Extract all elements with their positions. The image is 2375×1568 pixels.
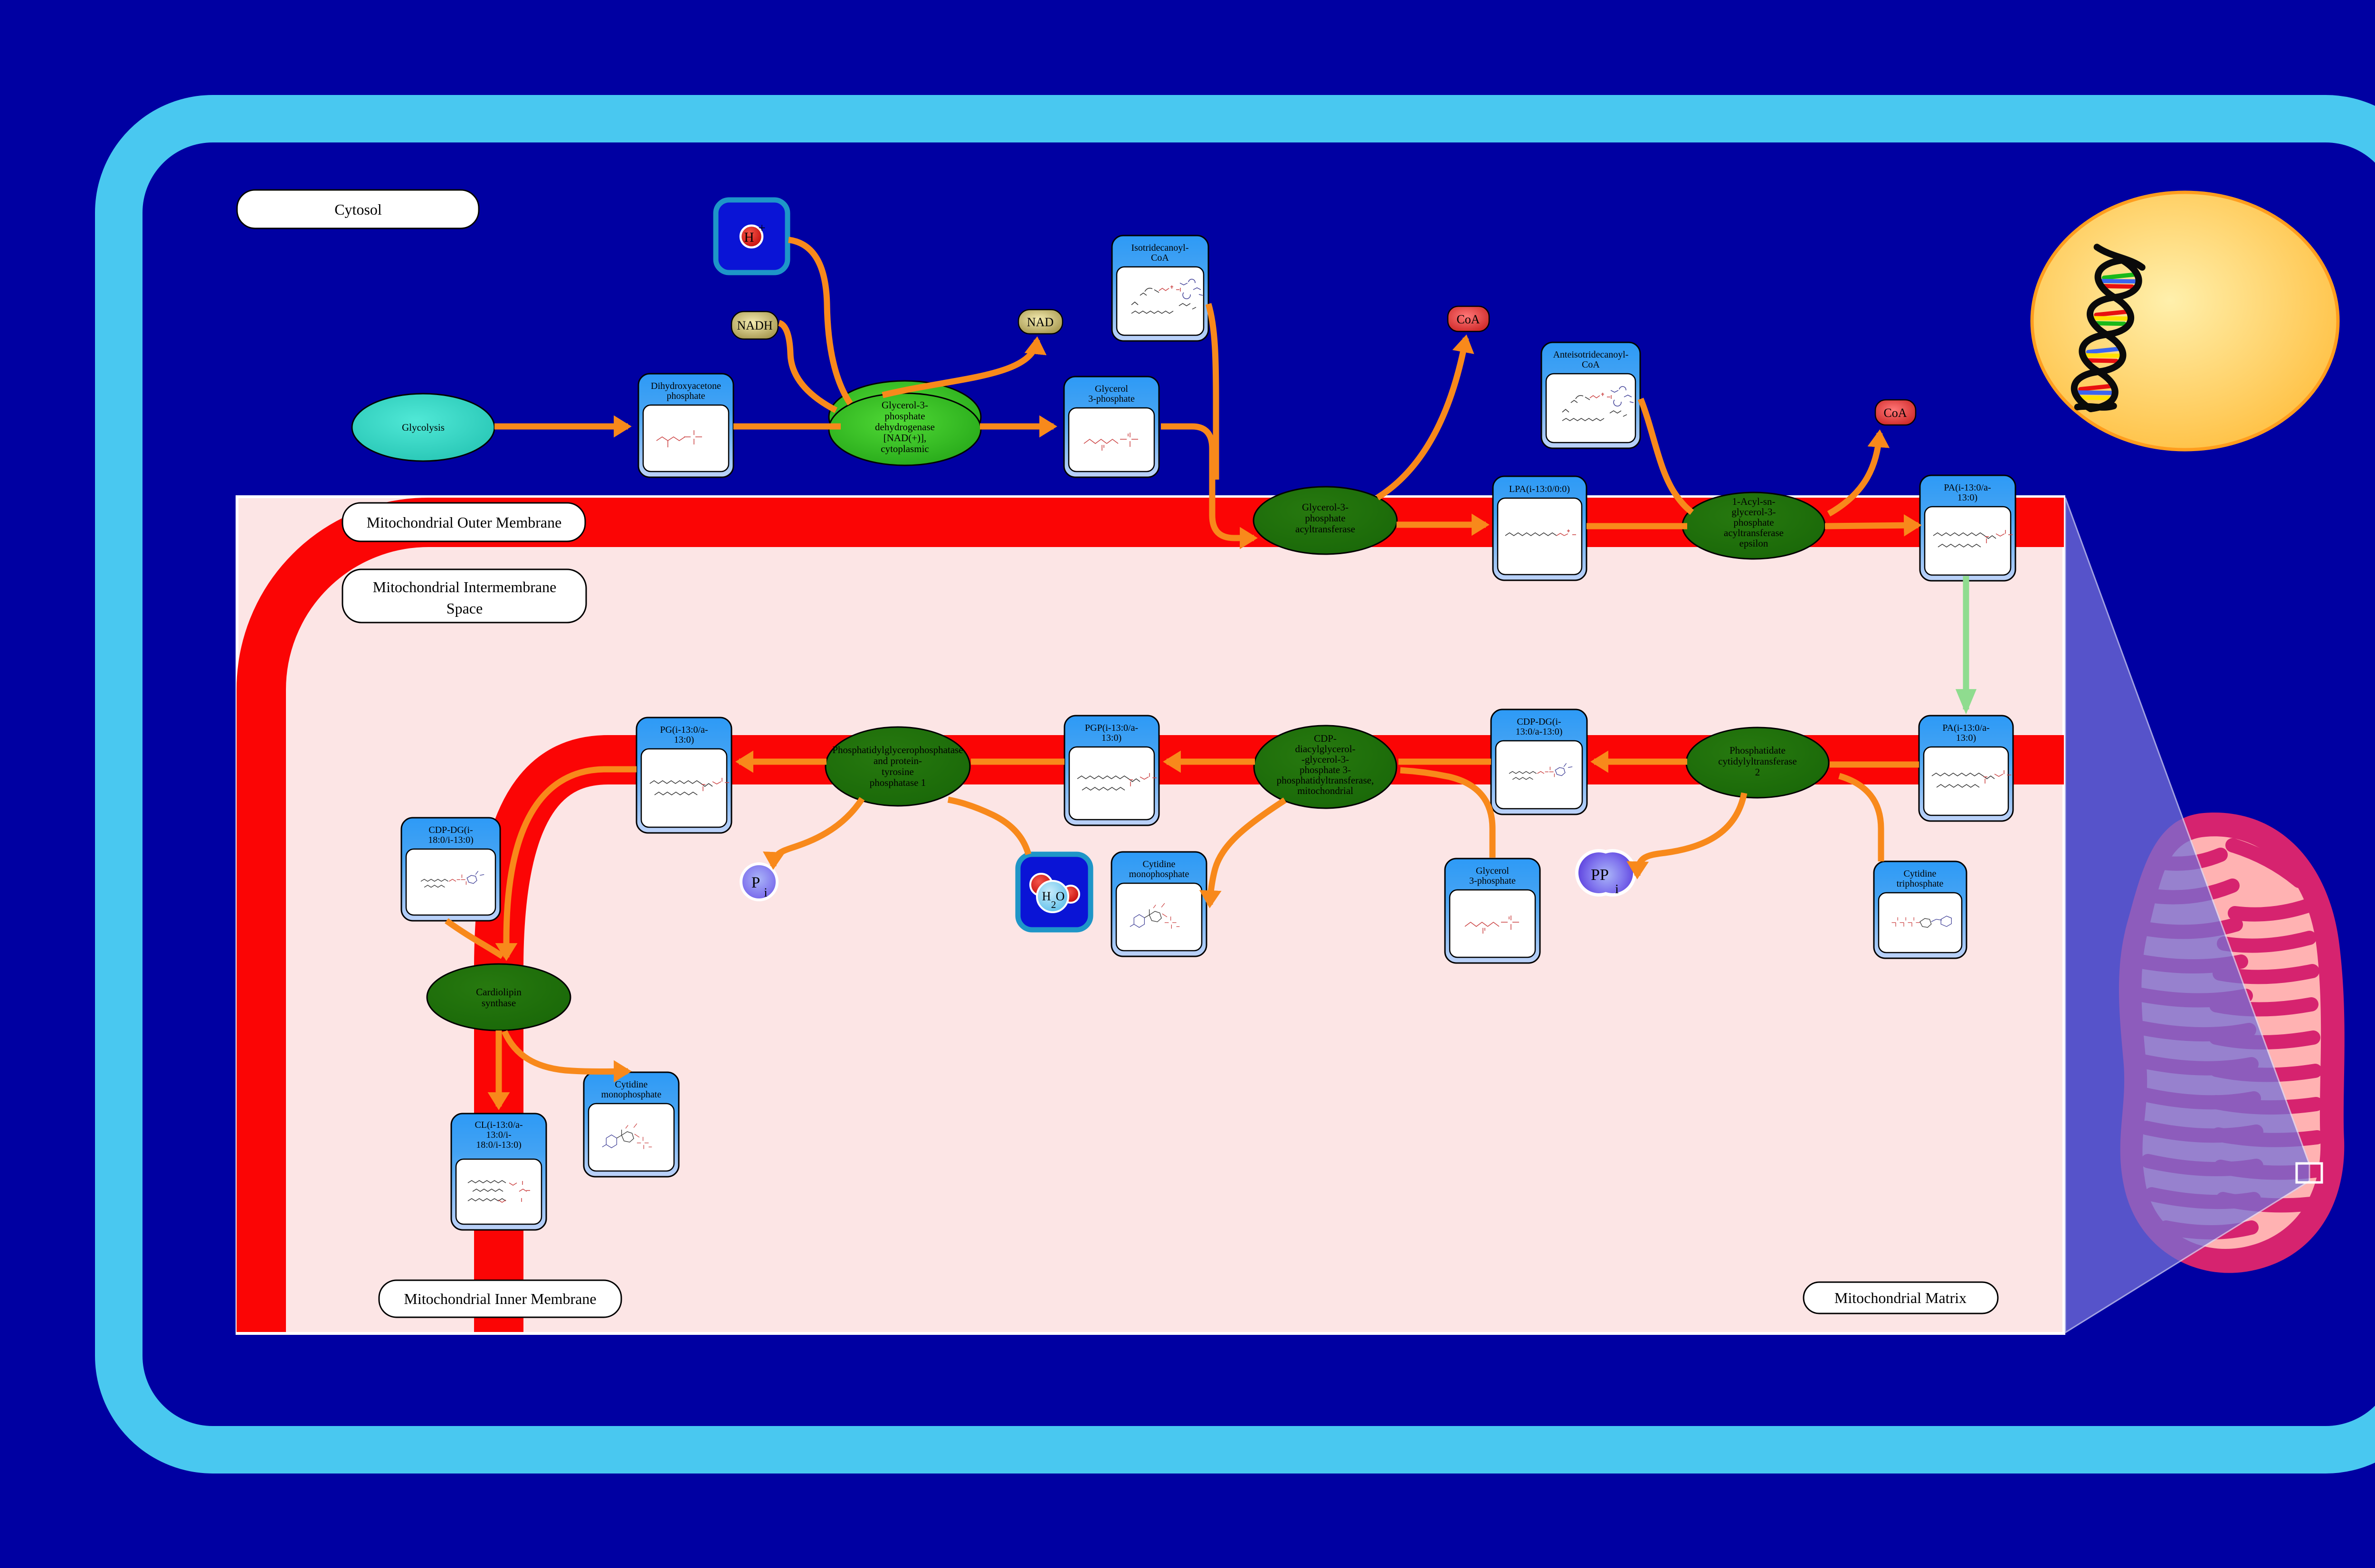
svg-text:13:0): 13:0)	[1957, 492, 1977, 503]
svg-text:Dihydroxyacetone: Dihydroxyacetone	[651, 381, 721, 391]
svg-text:18:0/i-13:0): 18:0/i-13:0)	[476, 1140, 522, 1150]
svg-text:2: 2	[1755, 766, 1760, 778]
svg-text:NADH: NADH	[737, 319, 772, 332]
svg-text:Glycerol-3-: Glycerol-3-	[1302, 501, 1349, 513]
svg-text:and protein-: and protein-	[874, 755, 922, 766]
svg-text:O: O	[1056, 889, 1065, 903]
svg-text:Cytidine: Cytidine	[615, 1079, 648, 1090]
svg-text:Mitochondrial Intermembrane: Mitochondrial Intermembrane	[373, 578, 557, 595]
svg-text:phosphate: phosphate	[666, 391, 705, 401]
svg-text:Glycerol: Glycerol	[1476, 866, 1509, 876]
svg-text:diacylglycerol-: diacylglycerol-	[1295, 743, 1355, 755]
svg-text:13:0/i-: 13:0/i-	[486, 1130, 511, 1140]
svg-text:CoA: CoA	[1456, 312, 1480, 326]
svg-text:Cytidine: Cytidine	[1904, 869, 1937, 879]
svg-text:P: P	[751, 874, 760, 891]
svg-text:triphosphate: triphosphate	[1897, 878, 1944, 889]
svg-text:Phosphatidate: Phosphatidate	[1729, 745, 1786, 756]
svg-text:1-Acyl-sn-: 1-Acyl-sn-	[1732, 496, 1776, 507]
svg-text:Phosphatidylglycerophosphatase: Phosphatidylglycerophosphatase	[832, 744, 963, 756]
svg-text:Mitochondrial Matrix: Mitochondrial Matrix	[1834, 1289, 1966, 1306]
svg-text:H: H	[744, 230, 754, 245]
svg-text:Space: Space	[446, 600, 483, 617]
svg-text:PA(i-13:0/a-: PA(i-13:0/a-	[1944, 482, 1991, 493]
svg-text:Cytidine: Cytidine	[1143, 859, 1176, 869]
svg-text:tyrosine: tyrosine	[882, 766, 914, 777]
svg-text:monophosphate: monophosphate	[601, 1089, 662, 1100]
svg-text:Cytosol: Cytosol	[334, 201, 382, 218]
svg-text:+: +	[758, 221, 765, 235]
svg-text:18:0/i-13:0): 18:0/i-13:0)	[428, 835, 474, 845]
svg-text:Cardiolipin: Cardiolipin	[476, 986, 522, 998]
svg-text:phosphate: phosphate	[1305, 512, 1345, 524]
svg-text:CDP-DG(i-: CDP-DG(i-	[428, 825, 473, 835]
svg-text:CoA: CoA	[1883, 406, 1907, 420]
svg-text:CoA: CoA	[1151, 253, 1169, 263]
svg-text:3-phosphate: 3-phosphate	[1469, 876, 1516, 886]
svg-text:PG(i-13:0/a-: PG(i-13:0/a-	[660, 725, 708, 735]
svg-text:CDP-DG(i-: CDP-DG(i-	[1517, 717, 1561, 727]
svg-text:acyltransferase: acyltransferase	[1724, 527, 1784, 538]
svg-text:Glycerol-3-: Glycerol-3-	[882, 399, 928, 411]
svg-text:Mitochondrial Outer Membrane: Mitochondrial Outer Membrane	[367, 514, 562, 531]
svg-text:Mitochondrial Inner Membrane: Mitochondrial Inner Membrane	[404, 1290, 596, 1307]
svg-text:Anteisotridecanoyl-: Anteisotridecanoyl-	[1553, 349, 1629, 360]
svg-text:CL(i-13:0/a-: CL(i-13:0/a-	[475, 1120, 522, 1130]
svg-text:-glycerol-3-: -glycerol-3-	[1301, 754, 1349, 765]
svg-text:13:0/a-13:0): 13:0/a-13:0)	[1516, 727, 1563, 737]
svg-text:i: i	[1615, 882, 1619, 896]
svg-text:mitochondrial: mitochondrial	[1297, 785, 1353, 796]
svg-text:CoA: CoA	[1582, 359, 1600, 370]
svg-text:Glycolysis: Glycolysis	[402, 422, 445, 433]
svg-text:dehydrogenase: dehydrogenase	[875, 421, 935, 433]
svg-text:PP: PP	[1591, 866, 1609, 884]
svg-text:CDP-: CDP-	[1314, 733, 1337, 744]
svg-text:3-phosphate: 3-phosphate	[1088, 394, 1135, 404]
svg-text:H: H	[1042, 889, 1051, 903]
svg-text:13:0): 13:0)	[674, 735, 694, 745]
svg-text:phosphatidyltransferase,: phosphatidyltransferase,	[1277, 775, 1374, 786]
svg-text:13:0): 13:0)	[1956, 733, 1976, 743]
svg-text:NAD: NAD	[1027, 315, 1054, 329]
svg-text:acyltransferase: acyltransferase	[1295, 523, 1355, 535]
svg-text:PA(i-13:0/a-: PA(i-13:0/a-	[1942, 723, 1989, 733]
svg-text:phosphatase 1: phosphatase 1	[870, 777, 926, 788]
svg-text:LPA(i-13:0/0:0): LPA(i-13:0/0:0)	[1509, 484, 1570, 494]
svg-text:Glycerol: Glycerol	[1095, 384, 1128, 394]
svg-text:synthase: synthase	[482, 997, 516, 1009]
svg-text:phosphate: phosphate	[884, 410, 925, 422]
svg-text:Isotridecanoyl-: Isotridecanoyl-	[1131, 243, 1188, 253]
svg-text:monophosphate: monophosphate	[1129, 869, 1189, 879]
svg-text:glycerol-3-: glycerol-3-	[1731, 506, 1776, 518]
svg-text:epsilon: epsilon	[1739, 538, 1768, 549]
svg-text:cytidylyltransferase: cytidylyltransferase	[1718, 756, 1797, 767]
svg-text:13:0): 13:0)	[1102, 733, 1121, 743]
svg-text:PGP(i-13:0/a-: PGP(i-13:0/a-	[1085, 723, 1138, 733]
svg-text:[NAD(+)],: [NAD(+)],	[883, 432, 927, 444]
svg-text:phosphate 3-: phosphate 3-	[1300, 764, 1351, 775]
svg-text:i: i	[764, 886, 767, 899]
svg-text:phosphate: phosphate	[1733, 517, 1774, 528]
svg-text:cytoplasmic: cytoplasmic	[881, 443, 929, 454]
